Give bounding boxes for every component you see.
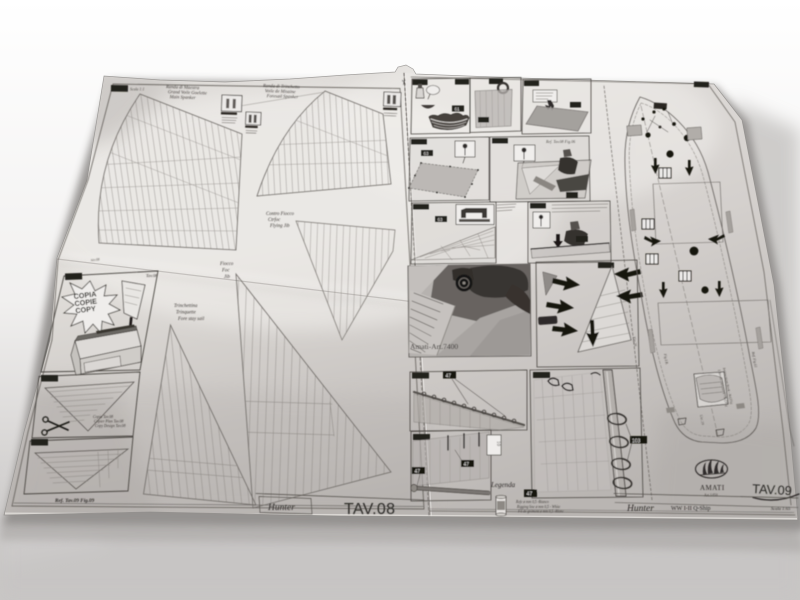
svg-text:Scala 1:1: Scala 1:1 xyxy=(130,88,145,92)
svg-text:63: 63 xyxy=(424,151,430,156)
svg-text:Hunter: Hunter xyxy=(267,503,295,513)
svg-text:AMATI: AMATI xyxy=(700,484,725,492)
svg-text:47: 47 xyxy=(415,469,421,475)
svg-text:tav.08: tav.08 xyxy=(91,258,100,262)
svg-text:Tav.08: Tav.08 xyxy=(146,273,158,278)
svg-text:61: 61 xyxy=(455,107,461,112)
svg-text:WW I-II Q-Ship: WW I-II Q-Ship xyxy=(671,506,711,512)
svg-text:Hunter: Hunter xyxy=(626,504,654,514)
svg-text:TAV.09: TAV.09 xyxy=(752,481,792,498)
svg-text:47: 47 xyxy=(446,374,452,380)
svg-text:Ref. Tav.08 Fig.06: Ref. Tav.08 Fig.06 xyxy=(545,139,575,144)
svg-text:47: 47 xyxy=(527,492,533,498)
svg-text:10: 10 xyxy=(495,441,500,447)
svg-text:103: 103 xyxy=(632,439,641,445)
svg-text:63: 63 xyxy=(438,217,444,222)
svg-text:Scala 1:65: Scala 1:65 xyxy=(771,506,791,511)
svg-text:COPIACOPIECOPY: COPIACOPIECOPY xyxy=(73,289,98,315)
svg-text:TAV.08: TAV.08 xyxy=(344,501,395,518)
svg-text:Amati-Art.7400: Amati-Art.7400 xyxy=(410,342,458,351)
svg-text:47: 47 xyxy=(464,462,470,468)
svg-text:Legenda: Legenda xyxy=(490,481,516,489)
svg-text:Ref. Tav.09 Fig.09: Ref. Tav.09 Fig.09 xyxy=(55,498,95,504)
